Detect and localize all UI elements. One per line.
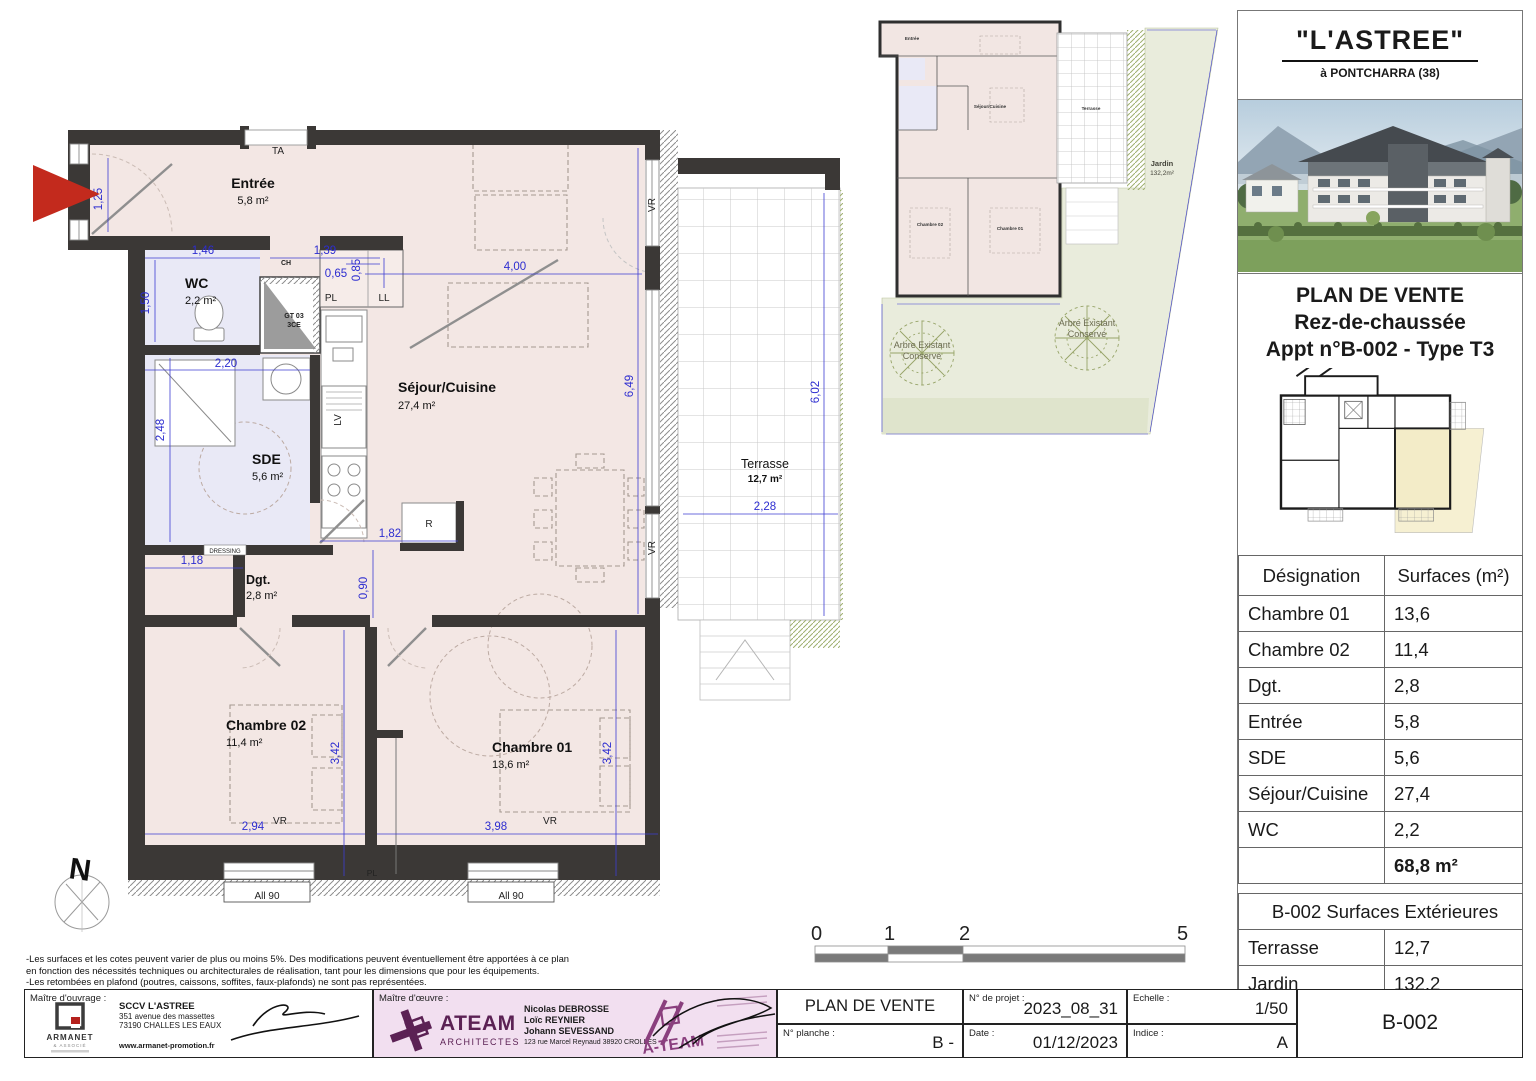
area-terrasse: 12,7 m² — [748, 474, 783, 485]
project-header: "L'ASTREE" à PONTCHARRA (38) — [1238, 11, 1522, 100]
dim-1-18: 1,18 — [181, 555, 203, 567]
date-label: Date : — [969, 1028, 994, 1039]
dim-6-02: 6,02 — [810, 381, 822, 403]
site-plan: Arbre Existant Conservé Arbre Existant C… — [850, 8, 1235, 503]
table-row: WC 2,2 — [1239, 812, 1523, 848]
row-value: 13,6 — [1385, 596, 1523, 632]
scale-2: 2 — [959, 923, 970, 945]
scale-0: 0 — [811, 923, 822, 945]
garden-strip — [882, 398, 1149, 434]
mini-label-entree: Entrée — [905, 36, 920, 41]
label-sejour: Séjour/Cuisine — [398, 379, 496, 395]
dim-0-90: 0,90 — [358, 577, 370, 599]
wall-hatch-bottom — [128, 880, 660, 896]
locator-plan — [1238, 368, 1522, 544]
maitre-ouvrage-box: Maître d'ouvrage : ARMANET & ASSOCIÉ SCC… — [24, 989, 373, 1058]
label-entree: Entrée — [231, 175, 275, 191]
dim-6-49: 6,49 — [624, 375, 636, 397]
label-vr-4: VR — [543, 816, 557, 827]
table-total-row: 68,8 m² — [1239, 848, 1523, 884]
exterior-table-title: B-002 Surfaces Extérieures — [1239, 894, 1523, 930]
building-render — [1238, 100, 1522, 274]
dim-0-65: 0,65 — [325, 268, 347, 280]
table-row: Séjour/Cuisine 27,4 — [1239, 776, 1523, 812]
area-sejour: 27,4 m² — [398, 400, 436, 412]
exterior-surfaces-table: B-002 Surfaces Extérieures Terrasse 12,7… — [1238, 893, 1523, 1002]
dim-1-39: 1,39 — [314, 245, 336, 257]
label-ch: CH — [281, 260, 291, 267]
label-pl: PL — [325, 293, 338, 304]
dim-1-25: 1,25 — [93, 188, 105, 210]
label-terrasse: Terrasse — [741, 457, 789, 471]
table-row: SDE 5,6 — [1239, 740, 1523, 776]
plan-de-vente-sheet: 1,25 1,46 1,39 0,65 0,85 1,50 2,20 2,48 … — [0, 0, 1536, 1081]
ateam-stamp-icon: A-TEAM — [629, 992, 777, 1056]
main-floor-plan: 1,25 1,46 1,39 0,65 0,85 1,50 2,20 2,48 … — [28, 118, 843, 938]
planche-value: B - — [932, 1033, 954, 1053]
row-label: WC — [1239, 812, 1385, 848]
plan-title-block: PLAN DE VENTE Rez-de-chaussée Appt n°B-0… — [1238, 274, 1522, 368]
total-value: 68,8 m² — [1385, 848, 1523, 884]
dim-3-42-a: 3,42 — [330, 742, 342, 764]
armanet-logo-subtext: & ASSOCIÉ — [53, 1042, 86, 1048]
indice-box: Indice : A — [1127, 1024, 1297, 1059]
label-pl-2: PL — [367, 868, 378, 878]
label-gt03: GT 03 — [284, 313, 304, 320]
maitre-oeuvre-box: Maître d'œuvre : ATEAM ARCHITECTES Nicol… — [373, 989, 777, 1058]
area-wc: 2,2 m² — [185, 295, 217, 307]
moa-company-block: SCCV L'ASTREE 351 avenue des massettes 7… — [119, 1002, 221, 1031]
dim-1-50: 1,50 — [140, 292, 152, 314]
indice-value: A — [1277, 1033, 1288, 1053]
sidebar-panel: "L'ASTREE" à PONTCHARRA (38) — [1237, 10, 1523, 1012]
table-row: Chambre 02 11,4 — [1239, 632, 1523, 668]
planche-label: N° planche : — [783, 1028, 835, 1039]
label-dgt: Dgt. — [246, 573, 270, 587]
dim-2-20: 2,20 — [215, 358, 237, 370]
scale-1: 1 — [884, 923, 895, 945]
moe-label: Maître d'œuvre : — [379, 993, 448, 1004]
armanet-logo-text: ARMANET — [47, 1033, 94, 1042]
mini-label-sejour: Séjour/Cuisine — [974, 104, 1007, 109]
row-value: 12,7 — [1385, 930, 1523, 966]
doc-title-box: PLAN DE VENTE — [777, 989, 963, 1024]
label-wc: WC — [185, 275, 208, 291]
planche-box: N° planche : B - — [777, 1024, 963, 1059]
disclaimer-line2: en fonction des nécessités techniques ou… — [26, 965, 768, 977]
label-vr-2: VR — [647, 541, 658, 555]
dim-2-28: 2,28 — [754, 501, 776, 513]
north-letter: N — [67, 852, 93, 888]
wall-hatch-right — [660, 130, 678, 608]
moa-company: SCCV L'ASTREE — [119, 1002, 221, 1012]
area-ch02: 11,4 m² — [226, 737, 263, 749]
scale-label: Echelle : — [1133, 993, 1169, 1004]
locator-plan-image — [1252, 368, 1508, 538]
tree1-label-line1: Arbre Existant — [894, 340, 951, 350]
label-r: R — [425, 519, 432, 530]
total-label — [1239, 848, 1385, 884]
project-location: à PONTCHARRA (38) — [1238, 66, 1522, 80]
armanet-logo-icon: ARMANET & ASSOCIÉ — [37, 1002, 103, 1056]
scale-bar-blocks — [815, 946, 1185, 962]
tree2-label-line2: Conservé — [1068, 329, 1107, 339]
dim-3-42-b: 3,42 — [602, 742, 614, 764]
scale-bar: 0 1 2 5 — [795, 922, 1195, 970]
sheet-code: B-002 — [1298, 990, 1522, 1056]
date-box: Date : 01/12/2023 — [963, 1024, 1127, 1059]
table-row: Entrée 5,8 — [1239, 704, 1523, 740]
label-ll: LL — [378, 293, 390, 304]
row-value: 2,8 — [1385, 668, 1523, 704]
moa-address-1: 351 avenue des massettes — [119, 1012, 221, 1022]
area-dgt: 2,8 m² — [246, 590, 278, 602]
doc-title: PLAN DE VENTE — [778, 990, 962, 1022]
dim-1-46: 1,46 — [192, 245, 214, 257]
row-value: 5,8 — [1385, 704, 1523, 740]
col-header-surfaces: Surfaces (m²) — [1385, 556, 1523, 596]
row-label: SDE — [1239, 740, 1385, 776]
project-number-box: N° de projet : 2023_08_31 — [963, 989, 1127, 1024]
sheet-code-box: B-002 — [1297, 989, 1523, 1058]
project-value: 2023_08_31 — [1023, 999, 1118, 1019]
date-value: 01/12/2023 — [1033, 1033, 1118, 1053]
row-value: 27,4 — [1385, 776, 1523, 812]
row-value: 5,6 — [1385, 740, 1523, 776]
row-label: Chambre 01 — [1239, 596, 1385, 632]
dim-3-98: 3,98 — [485, 821, 507, 833]
table-row: Dgt. 2,8 — [1239, 668, 1523, 704]
area-sde: 5,6 m² — [252, 471, 284, 483]
label-ch02: Chambre 02 — [226, 717, 306, 733]
jardin-area: 132,2m² — [1150, 170, 1175, 177]
label-ta: TA — [272, 146, 284, 157]
jardin-label: Jardin — [1151, 159, 1174, 168]
ateam-logo-text: ATEAM — [440, 1012, 516, 1035]
disclaimer-line1: -Les surfaces et les cotes peuvent varie… — [26, 953, 768, 965]
ateam-logo-subtext: ARCHITECTES — [440, 1037, 520, 1047]
label-vr-1: VR — [647, 198, 658, 212]
ateam-logo-icon: ATEAM ARCHITECTES — [382, 1004, 522, 1056]
surfaces-table: Désignation Surfaces (m²) Chambre 01 13,… — [1238, 555, 1523, 884]
moa-signature-icon — [225, 996, 365, 1054]
label-3ce: 3CE — [287, 322, 301, 329]
disclaimer-line3: -Les retombées en plafond (poutres, cais… — [26, 976, 768, 988]
mini-label-terrasse: Terrasse — [1082, 106, 1101, 111]
scale-box: Echelle : 1/50 — [1127, 989, 1297, 1024]
mini-label-ch02: Chambre 02 — [917, 222, 944, 227]
label-dressing: DRESSING — [209, 549, 241, 555]
label-all90-1: All 90 — [254, 891, 279, 902]
moa-address-2: 73190 CHALLES LES EAUX — [119, 1021, 221, 1031]
north-compass-icon: N — [55, 852, 109, 932]
row-label: Séjour/Cuisine — [1239, 776, 1385, 812]
label-lv: LV — [333, 414, 344, 426]
plan-title-line1: PLAN DE VENTE — [1238, 282, 1522, 309]
area-entree: 5,8 m² — [237, 195, 269, 207]
scale-5: 5 — [1177, 923, 1188, 945]
row-label: Entrée — [1239, 704, 1385, 740]
table-row: Terrasse 12,7 — [1239, 930, 1523, 966]
row-value: 11,4 — [1385, 632, 1523, 668]
table-row: Chambre 01 13,6 — [1239, 596, 1523, 632]
project-title: "L'ASTREE" — [1282, 25, 1478, 62]
indice-label: Indice : — [1133, 1028, 1164, 1039]
label-ch01: Chambre 01 — [492, 739, 572, 755]
label-all90-2: All 90 — [498, 891, 523, 902]
dim-4-00: 4,00 — [504, 261, 526, 273]
plan-title-line2: Rez-de-chaussée — [1238, 309, 1522, 336]
building-render-image — [1238, 100, 1522, 272]
mini-hedge — [1127, 30, 1145, 190]
dim-1-82: 1,82 — [379, 528, 401, 540]
tree2-label-line1: Arbre Existant — [1059, 318, 1116, 328]
terrace-area — [678, 158, 843, 700]
plan-title-line3: Appt n°B-002 - Type T3 — [1238, 336, 1522, 363]
col-header-designation: Désignation — [1239, 556, 1385, 596]
dim-2-94: 2,94 — [242, 821, 265, 833]
row-label: Dgt. — [1239, 668, 1385, 704]
label-sde: SDE — [252, 451, 281, 467]
mini-label-ch01: Chambre 01 — [997, 226, 1024, 231]
project-label: N° de projet : — [969, 993, 1025, 1004]
moa-website: www.armanet-promotion.fr — [119, 1041, 215, 1050]
row-label: Chambre 02 — [1239, 632, 1385, 668]
row-label: Terrasse — [1239, 930, 1385, 966]
scale-ticks: 0 1 2 5 — [811, 923, 1188, 945]
label-vr-3: VR — [273, 816, 287, 827]
dim-2-48: 2,48 — [155, 419, 167, 441]
area-ch01: 13,6 m² — [492, 759, 530, 771]
row-value: 2,2 — [1385, 812, 1523, 848]
scale-value: 1/50 — [1255, 999, 1288, 1019]
tree1-label-line2: Conservé — [903, 351, 942, 361]
dim-0-85: 0,85 — [351, 259, 363, 281]
